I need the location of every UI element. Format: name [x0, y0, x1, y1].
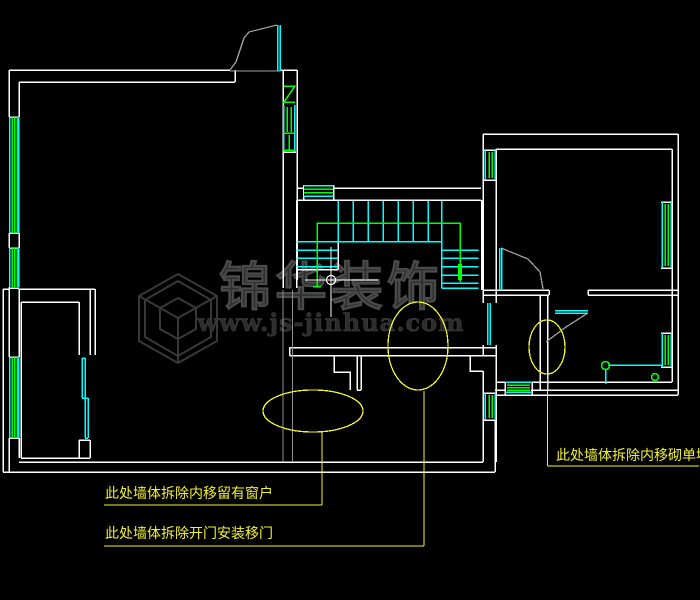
- annotation-label-keep-window: 此处墙体拆除内移留有窗户: [105, 485, 273, 502]
- cad-drawing-canvas: 锦华装饰 www.js-jinhua.com: [0, 0, 700, 600]
- bedroom-door-swing: [501, 248, 543, 289]
- windows-and-doors: [10, 25, 672, 438]
- entry-door-swing: [230, 25, 277, 70]
- bath-door-swing: [546, 313, 588, 342]
- annotation-label-sliding-door: 此处墙体拆除开门安装移门: [105, 526, 273, 542]
- stair-arrow-head: [458, 264, 462, 280]
- highlight-ellipse-keep-window: [263, 390, 363, 432]
- annotation-label-single-wall: 此处墙体拆除内移砌单墙: [556, 448, 700, 464]
- annotation-highlights: [104, 302, 699, 546]
- floor-plan: 锦华装饰 www.js-jinhua.com: [0, 0, 700, 600]
- plumbing-symbol-icon: [652, 374, 659, 381]
